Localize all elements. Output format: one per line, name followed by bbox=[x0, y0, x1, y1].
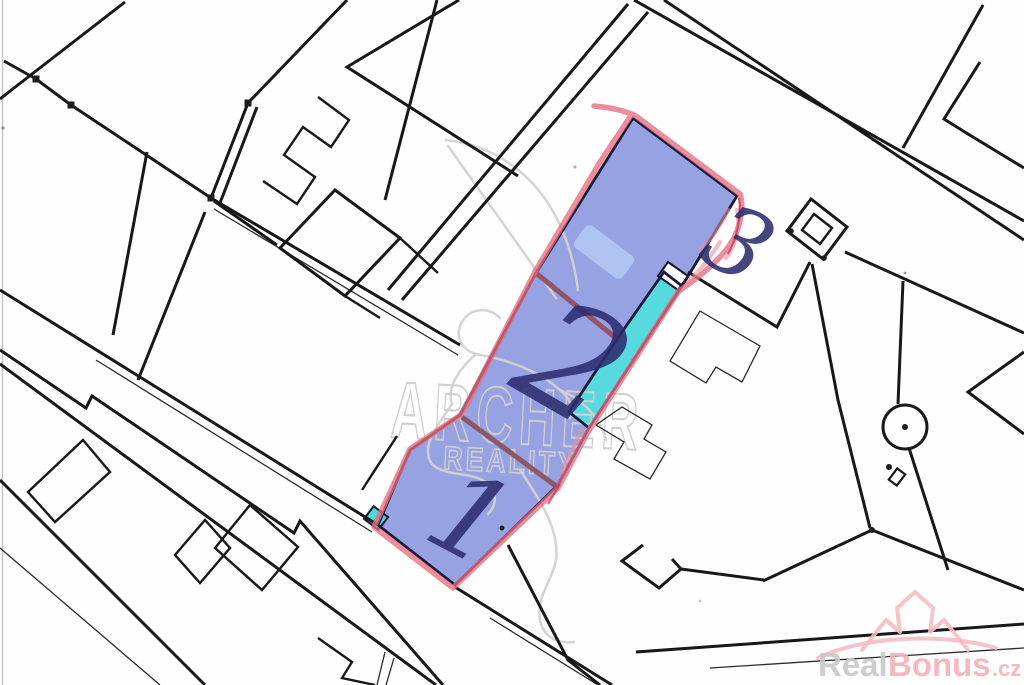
logo-text-cz: .cz bbox=[992, 656, 1021, 681]
hydrant-hook-icon bbox=[886, 464, 905, 486]
logo-text-bonus: Bonus bbox=[888, 646, 991, 683]
boundary-marker-icon bbox=[245, 100, 252, 107]
logo-text-real: Real bbox=[818, 646, 888, 683]
cadastral-map-scan: ARCHER REALITY bbox=[0, 0, 1024, 685]
survey-dot bbox=[869, 527, 875, 533]
boundary-marker-icon bbox=[33, 76, 40, 83]
map-canvas: ARCHER REALITY bbox=[0, 0, 1024, 685]
boundary-marker-icon bbox=[208, 195, 215, 202]
boundary-marker-icon bbox=[68, 102, 75, 109]
monument-double-square-icon bbox=[787, 199, 847, 261]
well-circle-icon bbox=[883, 405, 927, 449]
